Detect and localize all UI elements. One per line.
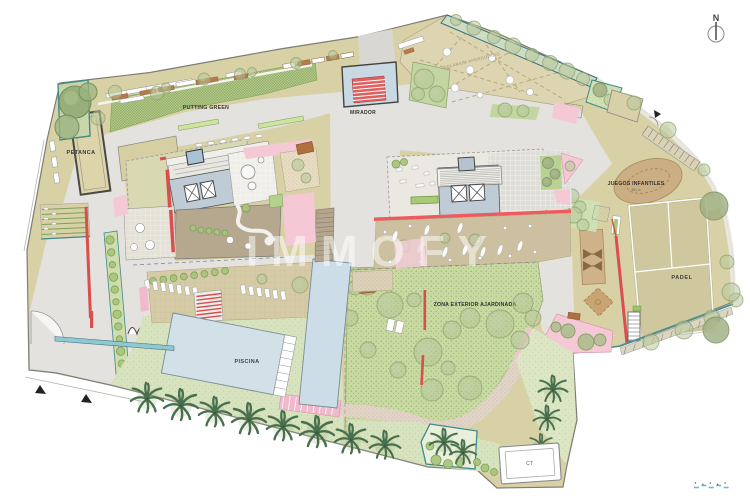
svg-text:CT: CT [526, 461, 534, 467]
svg-text:PETANCA: PETANCA [67, 150, 96, 156]
svg-text:JUEGOS INFANTILES: JUEGOS INFANTILES [608, 181, 665, 187]
svg-text:PADEL: PADEL [671, 275, 692, 281]
svg-text:ZONA EXTERIOR AJARDINADA: ZONA EXTERIOR AJARDINADA [434, 302, 517, 308]
svg-text:PISCINA: PISCINA [234, 359, 259, 365]
svg-text:IMMOFY: IMMOFY [246, 227, 500, 276]
svg-text:N: N [713, 13, 720, 23]
svg-text:PUTTING GREEN: PUTTING GREEN [183, 105, 229, 111]
svg-text:561 m: 561 m [632, 188, 641, 192]
svg-text:MIRADOR: MIRADOR [350, 110, 376, 116]
